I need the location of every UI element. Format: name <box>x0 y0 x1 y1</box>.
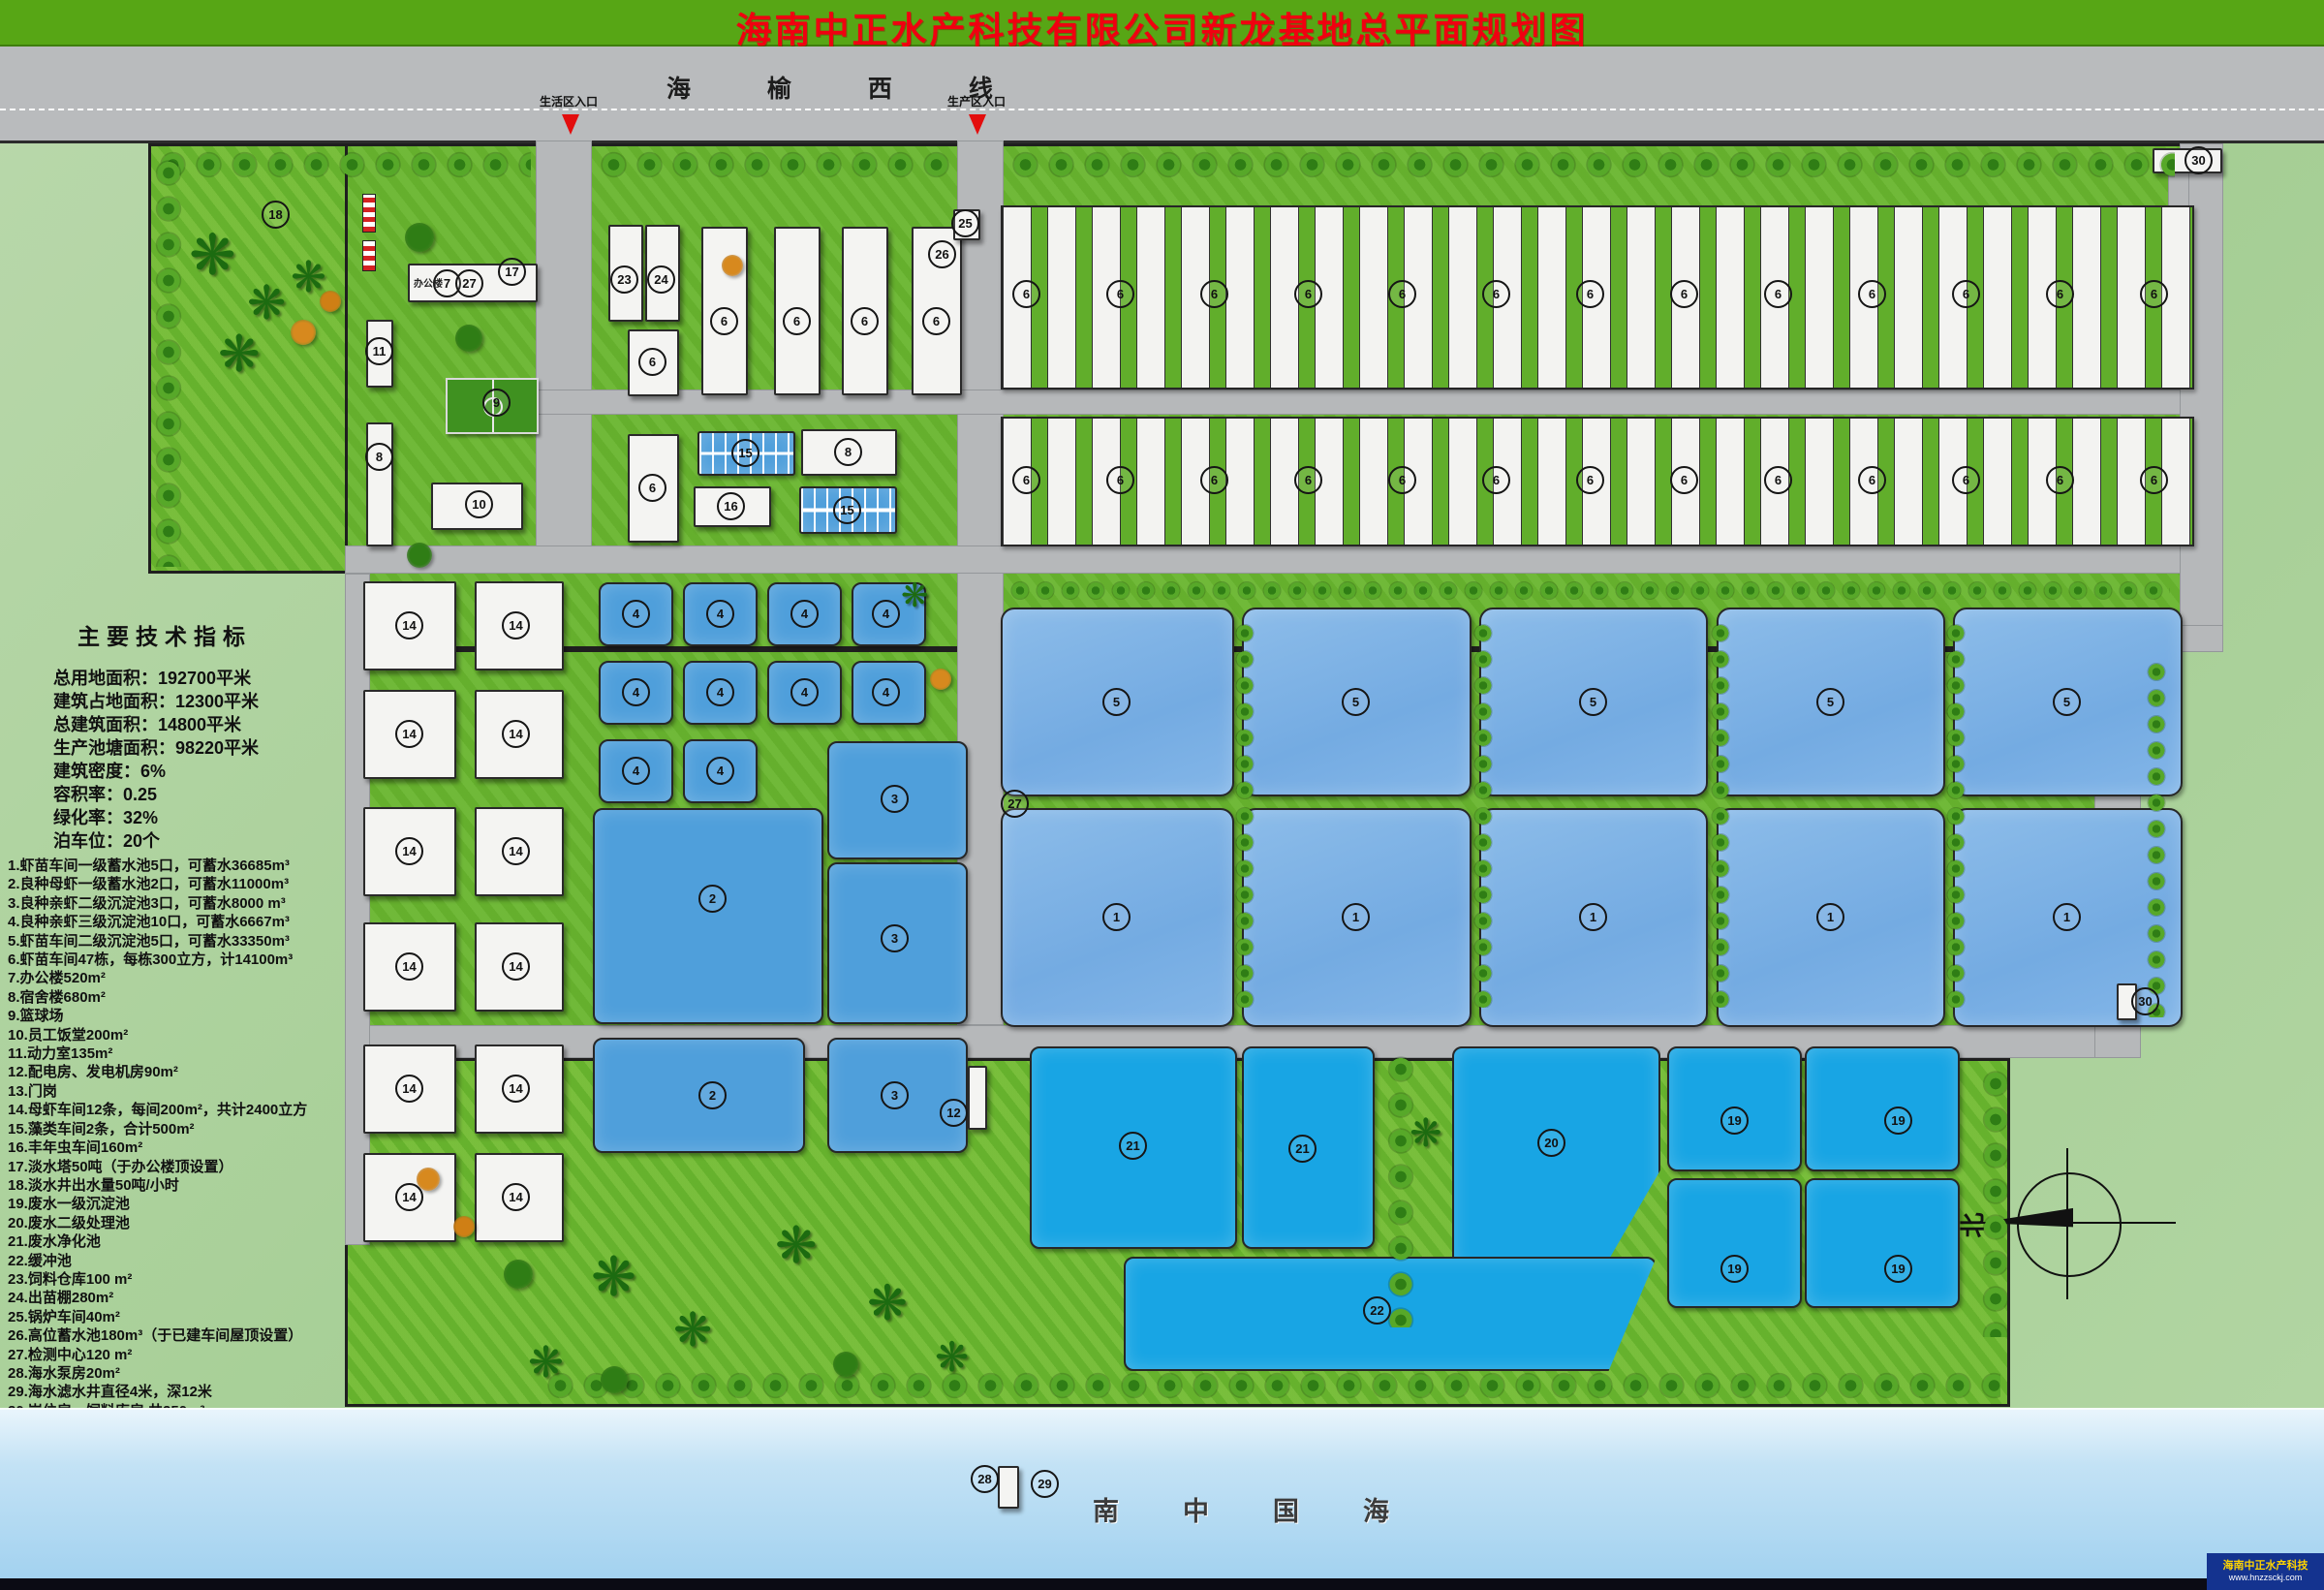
bush-icon <box>455 325 482 352</box>
tech-indicator-line: 建筑占地面积：12300平米 <box>53 690 259 713</box>
bush-icon <box>722 255 743 276</box>
palm-tree-icon: ❋ <box>528 1342 564 1385</box>
map-number-marker-4: 4 <box>706 600 734 628</box>
pond-19 <box>1667 1178 1802 1308</box>
map-number-marker-5: 5 <box>1102 688 1131 716</box>
sea-pump-house-28 <box>998 1466 1019 1509</box>
map-number-marker-15: 15 <box>833 496 861 524</box>
living-entrance-arrow-icon <box>562 114 579 135</box>
legend-item: 23.饲料仓库100 m² <box>8 1270 307 1289</box>
production-entrance-label: 生产区入口 <box>947 93 1006 109</box>
map-number-marker-6: 6 <box>1012 466 1040 494</box>
palm-tree-icon: ❋ <box>901 579 929 612</box>
map-number-marker-6: 6 <box>1764 466 1792 494</box>
map-number-marker-14: 14 <box>395 611 423 639</box>
map-number-marker-6: 6 <box>1106 466 1134 494</box>
map-number-marker-4: 4 <box>790 600 819 628</box>
map-number-marker-12: 12 <box>940 1099 968 1127</box>
map-number-marker-19: 19 <box>1720 1255 1749 1283</box>
map-number-marker-6: 6 <box>1952 466 1980 494</box>
map-number-marker-22: 22 <box>1363 1296 1391 1325</box>
gate-barrier-icon <box>362 194 376 233</box>
tech-indicator-line: 绿化率：32% <box>53 806 259 829</box>
map-number-marker-5: 5 <box>1816 688 1844 716</box>
map-number-marker-6: 6 <box>1952 280 1980 308</box>
legend-item: 16.丰年虫车间160m² <box>8 1138 307 1157</box>
bush-icon <box>504 1260 533 1289</box>
legend-item: 22.缓冲池 <box>8 1252 307 1270</box>
watermark-company: 海南中正水产科技 <box>2207 1557 2324 1573</box>
map-number-marker-6: 6 <box>1670 466 1698 494</box>
legend-item: 13.门岗 <box>8 1082 307 1101</box>
map-number-marker-1: 1 <box>1102 903 1131 931</box>
map-number-marker-6: 6 <box>710 307 738 335</box>
legend-item: 19.废水一级沉淀池 <box>8 1195 307 1213</box>
map-number-marker-27: 27 <box>1001 790 1029 818</box>
map-number-marker-6: 6 <box>1200 280 1228 308</box>
legend-item: 10.员工饭堂200m² <box>8 1026 307 1044</box>
map-number-marker-2: 2 <box>698 885 727 913</box>
map-number-marker-14: 14 <box>502 1075 530 1103</box>
legend-item: 24.出苗棚280m² <box>8 1289 307 1307</box>
legend-item: 12.配电房、发电机房90m² <box>8 1063 307 1081</box>
map-number-marker-6: 6 <box>2046 280 2074 308</box>
map-number-marker-5: 5 <box>2053 688 2081 716</box>
map-number-marker-6: 6 <box>638 474 666 502</box>
pond-19 <box>1805 1178 1960 1308</box>
map-number-marker-14: 14 <box>395 952 423 981</box>
palm-tree-icon: ❋ <box>291 257 326 299</box>
office-building-label: 办公楼 <box>414 275 443 290</box>
map-number-marker-14: 14 <box>502 1183 530 1211</box>
map-number-marker-20: 20 <box>1537 1129 1565 1157</box>
map-number-marker-6: 6 <box>1858 466 1886 494</box>
map-number-marker-8: 8 <box>365 443 393 471</box>
map-number-marker-4: 4 <box>872 678 900 706</box>
map-number-marker-1: 1 <box>1579 903 1607 931</box>
palm-tree-icon: ❋ <box>775 1221 818 1271</box>
map-number-marker-6: 6 <box>783 307 811 335</box>
legend-item: 4.良种亲虾三级沉淀池10口，可蓄水6667m³ <box>8 913 307 931</box>
map-number-marker-4: 4 <box>622 757 650 785</box>
tech-indicator-line: 容积率：0.25 <box>53 783 259 806</box>
map-number-marker-14: 14 <box>502 611 530 639</box>
map-number-marker-6: 6 <box>2140 280 2168 308</box>
map-number-marker-24: 24 <box>647 265 675 294</box>
watermark: 海南中正水产科技 www.hnzzsckj.com <box>2207 1553 2324 1590</box>
legend-item: 3.良种亲虾二级沉淀池3口，可蓄水8000 m³ <box>8 894 307 913</box>
map-number-marker-6: 6 <box>1294 280 1322 308</box>
site-plan-canvas: 海南中正水产科技有限公司新龙基地总平面规划图 海 榆 西 线 生活区入口 生产区… <box>0 0 2324 1590</box>
legend-item: 6.虾苗车间47栋，每栋300立方，计14100m³ <box>8 951 307 969</box>
map-number-marker-19: 19 <box>1884 1255 1912 1283</box>
tech-panel-lines: 总用地面积：192700平米建筑占地面积：12300平米总建筑面积：14800平… <box>53 667 259 853</box>
map-number-marker-3: 3 <box>881 924 909 952</box>
gate-barrier-icon <box>362 240 376 271</box>
pond-2 <box>593 808 823 1024</box>
legend-item: 9.篮球场 <box>8 1007 307 1025</box>
map-number-marker-14: 14 <box>502 837 530 865</box>
legend-item: 2.良种母虾一级蓄水池2口，可蓄水11000m³ <box>8 875 307 893</box>
tech-indicator-line: 生产池塘面积：98220平米 <box>53 736 259 760</box>
road-guardhouse-stub <box>2168 170 2189 208</box>
map-number-marker-4: 4 <box>622 678 650 706</box>
map-number-marker-4: 4 <box>706 757 734 785</box>
map-number-marker-27: 27 <box>455 269 483 297</box>
palm-tree-icon: ❋ <box>247 281 286 327</box>
legend-item: 29.海水滤水井直径4米，深12米 <box>8 1383 307 1401</box>
map-number-marker-19: 19 <box>1720 1107 1749 1135</box>
map-number-marker-6: 6 <box>1670 280 1698 308</box>
dormitory-8 <box>366 422 393 546</box>
map-number-marker-30: 30 <box>2185 146 2213 174</box>
map-number-marker-17: 17 <box>498 258 526 286</box>
living-entrance-label: 生活区入口 <box>540 93 598 109</box>
legend-item: 7.办公楼520m² <box>8 969 307 987</box>
bush-icon <box>407 543 432 568</box>
tech-indicator-line: 泊车位：20个 <box>53 829 259 853</box>
map-number-marker-3: 3 <box>881 1081 909 1109</box>
tech-indicator-line: 总用地面积：192700平米 <box>53 667 259 690</box>
map-number-marker-4: 4 <box>706 678 734 706</box>
palm-tree-icon: ❋ <box>591 1250 636 1304</box>
map-number-marker-6: 6 <box>1576 466 1604 494</box>
tech-panel-heading: 主要技术指标 <box>77 618 252 651</box>
legend-item: 20.废水二级处理池 <box>8 1214 307 1232</box>
palm-tree-icon: ❋ <box>1410 1114 1442 1153</box>
map-number-marker-19: 19 <box>1884 1107 1912 1135</box>
road-left-column <box>345 574 370 1245</box>
map-number-marker-15: 15 <box>731 439 759 467</box>
bush-icon <box>453 1216 475 1237</box>
map-number-marker-14: 14 <box>502 952 530 981</box>
map-number-marker-14: 14 <box>502 720 530 748</box>
legend-item: 11.动力室135m² <box>8 1044 307 1063</box>
bush-icon <box>320 291 341 312</box>
map-number-marker-6: 6 <box>851 307 879 335</box>
map-number-marker-14: 14 <box>395 837 423 865</box>
legend-item: 26.高位蓄水池180m³（于已建车间屋顶设置） <box>8 1326 307 1345</box>
map-number-marker-6: 6 <box>2046 466 2074 494</box>
map-number-marker-18: 18 <box>262 201 290 229</box>
bush-icon <box>833 1352 858 1377</box>
road-living-vertical <box>536 140 592 574</box>
map-number-marker-14: 14 <box>395 1183 423 1211</box>
map-number-marker-21: 21 <box>1288 1135 1317 1163</box>
map-number-marker-3: 3 <box>881 785 909 813</box>
map-number-marker-5: 5 <box>1342 688 1370 716</box>
map-number-marker-6: 6 <box>1200 466 1228 494</box>
map-number-marker-23: 23 <box>610 265 638 294</box>
map-number-marker-6: 6 <box>638 348 666 376</box>
page-title: 海南中正水产科技有限公司新龙基地总平面规划图 <box>0 1 2324 53</box>
legend-item: 18.淡水井出水量50吨/小时 <box>8 1176 307 1195</box>
watermark-url: www.hnzzsckj.com <box>2207 1573 2324 1582</box>
road-horizontal-1 <box>345 546 2223 574</box>
legend-item: 8.宿舍楼680m² <box>8 988 307 1007</box>
legend-item: 28.海水泵房20m² <box>8 1364 307 1383</box>
map-number-marker-6: 6 <box>1576 280 1604 308</box>
map-number-marker-21: 21 <box>1119 1132 1147 1160</box>
legend-item: 14.母虾车间12条，每间200m²，共计2400立方 <box>8 1101 307 1119</box>
legend-list: 1.虾苗车间一级蓄水池5口，可蓄水36685m³2.良种母虾一级蓄水池2口，可蓄… <box>8 857 307 1420</box>
map-number-marker-6: 6 <box>1482 280 1510 308</box>
map-number-marker-14: 14 <box>395 720 423 748</box>
sea-name-label: 南中国海 <box>1093 1490 1453 1528</box>
map-number-marker-28: 28 <box>971 1465 999 1493</box>
bottom-black-bar <box>0 1578 2324 1590</box>
map-number-marker-26: 26 <box>928 240 956 268</box>
map-number-marker-25: 25 <box>951 209 979 237</box>
map-number-marker-9: 9 <box>482 389 511 417</box>
map-number-marker-1: 1 <box>1342 903 1370 931</box>
legend-item: 25.锅炉车间40m² <box>8 1308 307 1326</box>
map-number-marker-5: 5 <box>1579 688 1607 716</box>
production-entrance-arrow-icon <box>969 114 986 135</box>
palm-tree-icon: ❋ <box>673 1308 712 1355</box>
legend-item: 17.淡水塔50吨（于办公楼顶设置） <box>8 1158 307 1176</box>
tech-indicator-line: 建筑密度：6% <box>53 760 259 783</box>
legend-item: 27.检测中心120 m² <box>8 1346 307 1364</box>
map-number-marker-29: 29 <box>1031 1470 1059 1498</box>
palm-tree-icon: ❋ <box>218 329 261 380</box>
map-number-marker-1: 1 <box>2053 903 2081 931</box>
map-number-marker-11: 11 <box>365 337 393 365</box>
map-number-marker-14: 14 <box>395 1075 423 1103</box>
map-number-marker-6: 6 <box>1858 280 1886 308</box>
map-number-marker-6: 6 <box>1388 466 1416 494</box>
palm-tree-icon: ❋ <box>189 228 236 284</box>
bush-icon <box>405 223 434 252</box>
bush-icon <box>930 669 951 690</box>
tech-indicator-line: 总建筑面积：14800平米 <box>53 713 259 736</box>
pond-19 <box>1805 1046 1960 1171</box>
power-distribution-12 <box>968 1066 987 1130</box>
map-number-marker-8: 8 <box>834 438 862 466</box>
bush-icon <box>601 1366 628 1393</box>
palm-tree-icon: ❋ <box>867 1279 908 1327</box>
palm-tree-icon: ❋ <box>935 1337 969 1378</box>
map-number-marker-2: 2 <box>698 1081 727 1109</box>
map-number-marker-6: 6 <box>1294 466 1322 494</box>
legend-item: 5.虾苗车间二级沉淀池5口，可蓄水33350m³ <box>8 932 307 951</box>
map-number-marker-6: 6 <box>1482 466 1510 494</box>
map-number-marker-16: 16 <box>717 492 745 520</box>
map-number-marker-6: 6 <box>1106 280 1134 308</box>
map-number-marker-6: 6 <box>1764 280 1792 308</box>
legend-item: 15.藻类车间2条，合计500m² <box>8 1120 307 1138</box>
map-number-marker-6: 6 <box>1388 280 1416 308</box>
highway-center-line <box>0 109 2324 110</box>
bush-icon <box>291 320 316 345</box>
highway <box>0 47 2324 143</box>
map-number-marker-6: 6 <box>922 307 950 335</box>
map-number-marker-30: 30 <box>2131 987 2159 1015</box>
map-number-marker-4: 4 <box>872 600 900 628</box>
map-number-marker-4: 4 <box>622 600 650 628</box>
legend-item: 1.虾苗车间一级蓄水池5口，可蓄水36685m³ <box>8 857 307 875</box>
map-number-marker-10: 10 <box>465 490 493 518</box>
map-number-marker-6: 6 <box>1012 280 1040 308</box>
legend-item: 21.废水净化池 <box>8 1232 307 1251</box>
map-number-marker-6: 6 <box>2140 466 2168 494</box>
map-number-marker-1: 1 <box>1816 903 1844 931</box>
map-number-marker-4: 4 <box>790 678 819 706</box>
